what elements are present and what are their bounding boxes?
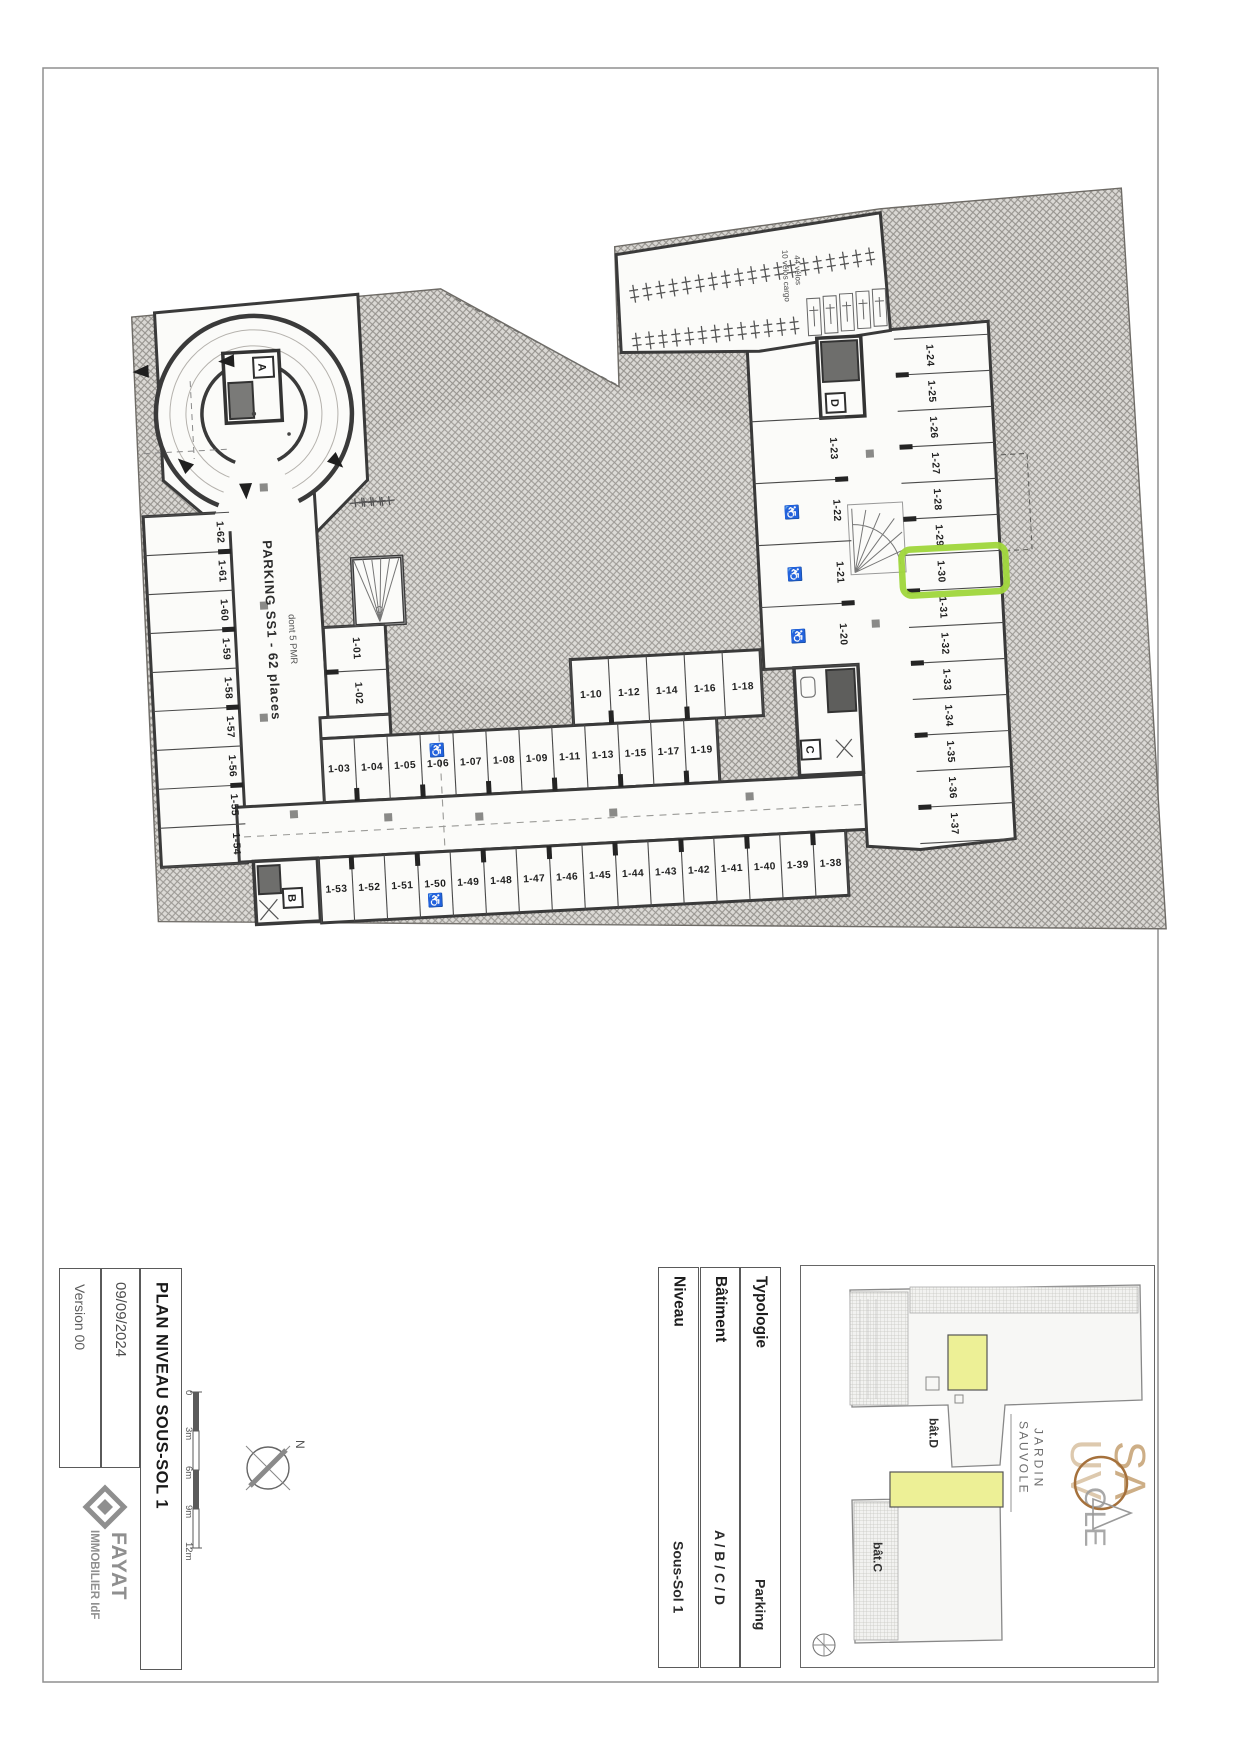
core-letter-B: B — [285, 894, 297, 903]
stall-label: 1-39 — [787, 859, 810, 871]
pmr-icon: ♿ — [428, 742, 445, 758]
stall-label: 1-29 — [933, 524, 945, 547]
core-letter-C: C — [803, 745, 815, 754]
stall-label: 1-61 — [216, 560, 228, 583]
stall-label: 1-38 — [819, 858, 842, 870]
stall-label: 1-16 — [694, 683, 717, 695]
wall-stub — [354, 788, 360, 801]
wall-stub — [618, 774, 624, 787]
scanned-plan-page: 1-621-611-601-591-581-571-561-551-541-01… — [0, 0, 1241, 1755]
column-marker — [384, 813, 392, 821]
stall-label: 1-37 — [948, 812, 960, 835]
scale-tick-0: 0 — [183, 1390, 194, 1395]
stall-label: 1-50 — [424, 878, 447, 890]
stall-label: 1-06 — [427, 758, 450, 770]
wall-stub — [678, 839, 684, 852]
stall-label: 1-03 — [328, 763, 351, 775]
version-text: Version 00 — [59, 1284, 101, 1454]
stall-label: 1-48 — [490, 875, 513, 887]
elevator-A — [228, 382, 254, 419]
wall-stub — [420, 784, 426, 797]
stall-label: 1-17 — [657, 746, 680, 758]
column-marker — [609, 808, 617, 816]
field-col-niveau: Niveau Sous-Sol 1 — [658, 1267, 699, 1668]
wall-stub — [608, 710, 614, 723]
wall-stub — [546, 846, 552, 859]
column-marker — [745, 792, 753, 800]
core-letter-A: A — [255, 363, 267, 372]
stall-label: 1-62 — [214, 521, 226, 544]
field-label-batiment: Bâtiment — [701, 1276, 739, 1446]
stall-label: 1-53 — [325, 884, 348, 896]
date-text: 09/09/2024 — [101, 1282, 140, 1457]
stall-label: 1-51 — [391, 880, 414, 892]
stall-label: 1-43 — [655, 866, 678, 878]
stall-label: 1-55 — [228, 793, 240, 816]
monogram-ole: OLE — [1078, 1487, 1111, 1547]
stall-label: 1-25 — [925, 380, 937, 403]
wall-stub — [842, 600, 855, 606]
wall-stub — [835, 476, 848, 482]
wall-stub — [899, 444, 912, 450]
wall-stub — [486, 781, 492, 794]
wall-stub — [349, 856, 355, 869]
elevator-D — [821, 340, 859, 382]
stall-label: 1-42 — [688, 865, 711, 877]
wall-stub — [222, 627, 235, 633]
column-marker — [872, 619, 880, 627]
key-label-batD: bât.D — [925, 1408, 942, 1458]
scale-tick-12: 12m — [183, 1542, 194, 1561]
wall-stub — [226, 704, 239, 710]
field-col-batiment: Bâtiment A / B / C / D — [700, 1267, 740, 1668]
stall-label: 1-13 — [592, 749, 615, 761]
wall-stub — [552, 777, 558, 790]
stall-label: 1-36 — [946, 776, 958, 799]
core-letter-D: D — [828, 399, 840, 408]
stall-label: 1-18 — [732, 681, 755, 693]
stall-label: 1-02 — [352, 682, 364, 705]
stall-label: 1-54 — [230, 832, 242, 855]
column-marker — [260, 483, 268, 491]
stall-label: 1-35 — [944, 740, 956, 763]
key-highlight-2 — [890, 1472, 1003, 1507]
wall-stub — [481, 849, 487, 862]
wall-stub — [911, 660, 924, 666]
key-label-batC: bât.C — [869, 1532, 886, 1582]
stall-label: 1-22 — [830, 499, 842, 522]
scale-tick-3: 3m — [183, 1427, 194, 1440]
stall-label: 1-12 — [618, 687, 641, 699]
north-compass: N — [246, 1440, 307, 1490]
stall-label: 1-59 — [220, 638, 232, 661]
wall-stub — [744, 835, 750, 848]
plan-rotated-group: 1-621-611-601-591-581-571-561-551-541-01… — [113, 187, 1175, 982]
stall-label: 1-52 — [358, 882, 381, 894]
drawing-title: PLAN NIVEAU SOUS-SOL 1 — [140, 1282, 182, 1662]
fayat-diamond-icon — [82, 1484, 128, 1530]
column-marker — [260, 714, 268, 722]
stall-label: 1-44 — [622, 868, 645, 880]
stall-label: 1-20 — [837, 623, 849, 646]
pmr-icon: ♿ — [787, 566, 804, 582]
wall-stub — [915, 732, 928, 738]
wall-stub — [230, 782, 243, 788]
stall-label: 1-26 — [927, 416, 939, 439]
stall-label: 1-60 — [218, 599, 230, 622]
stall-label: 1-34 — [942, 704, 954, 727]
field-label-typologie: Typologie — [741, 1276, 780, 1456]
field-value-typologie: Parking — [741, 1552, 780, 1657]
stall-label: 1-28 — [931, 488, 943, 511]
project-name-line2: SAUVOLE — [1016, 1421, 1031, 1531]
logo-address-line — [1010, 1414, 1012, 1512]
stall-label: 1-05 — [394, 760, 417, 772]
key-highlight-1 — [948, 1335, 987, 1390]
pmr-icon: ♿ — [427, 893, 444, 909]
monogram-sa: SA — [1105, 1441, 1154, 1500]
scale-bar: 0 3m 6m 9m 12m — [183, 1390, 202, 1561]
pmr-icon: ♿ — [790, 628, 807, 644]
wall-stub — [684, 771, 690, 784]
wall-stub — [218, 549, 231, 555]
stall-label: 1-33 — [940, 668, 952, 691]
field-value-batiment: A / B / C / D — [701, 1477, 739, 1657]
stall-label: 1-58 — [222, 677, 234, 700]
stall-label: 1-14 — [656, 685, 679, 697]
stall-label: 1-01 — [350, 637, 362, 660]
wall-stub — [415, 853, 421, 866]
stall-label: 1-47 — [523, 873, 546, 885]
stall-label: 1-07 — [460, 756, 483, 768]
stall-label: 1-10 — [580, 689, 603, 701]
stall-label: 1-40 — [754, 861, 777, 873]
wall-stub — [903, 516, 916, 522]
column-marker — [290, 810, 298, 818]
stall-label: 1-27 — [929, 452, 941, 475]
column-marker — [475, 812, 483, 820]
stall-label: 1-32 — [938, 632, 950, 655]
wall-stub — [612, 842, 618, 855]
stall-label: 1-56 — [226, 754, 238, 777]
stall-label: 1-21 — [833, 561, 845, 584]
stall-label: 1-49 — [457, 877, 480, 889]
column-marker — [866, 449, 874, 457]
stall-label: 1-19 — [690, 744, 713, 756]
stall-label: 1-45 — [589, 870, 612, 882]
stall-label: 1-57 — [224, 716, 236, 739]
field-label-niveau: Niveau — [659, 1276, 698, 1436]
scale-tick-6: 6m — [183, 1466, 194, 1479]
pmr-icon: ♿ — [783, 504, 800, 520]
field-value-niveau: Sous-Sol 1 — [659, 1497, 698, 1657]
fayat-brand-text: FAYAT — [104, 1532, 132, 1642]
brand-monogram: SA UV OLE — [1048, 1402, 1160, 1580]
scale-tick-9: 9m — [183, 1505, 194, 1518]
wall-stub — [918, 804, 931, 810]
stall-label: 1-46 — [556, 871, 579, 883]
compass-north-label: N — [293, 1440, 307, 1449]
stall-label: 1-11 — [559, 751, 581, 763]
fayat-sub-text: IMMOBILIER IdF — [84, 1530, 104, 1670]
bike-count-label: 44 vélos — [792, 255, 803, 285]
wall-stub — [684, 706, 690, 719]
stall-label: 1-09 — [526, 753, 549, 765]
stall-label: 1-24 — [923, 344, 935, 367]
project-name-line1: JARDIN — [1031, 1428, 1046, 1528]
key-compass — [813, 1634, 835, 1656]
stall-label: 1-31 — [936, 596, 948, 619]
wall-stub — [896, 372, 909, 378]
stall-label: 1-08 — [493, 755, 516, 767]
stall-label: 1-15 — [624, 748, 647, 760]
stall-label: 1-41 — [721, 863, 744, 875]
wall-stub — [810, 832, 816, 845]
field-col-typologie: Typologie Parking — [740, 1267, 781, 1668]
stall-label: 1-30 — [935, 560, 947, 583]
stall-label: 1-04 — [361, 762, 384, 774]
stall-label: 1-23 — [827, 437, 839, 460]
wall-stub — [325, 669, 338, 675]
